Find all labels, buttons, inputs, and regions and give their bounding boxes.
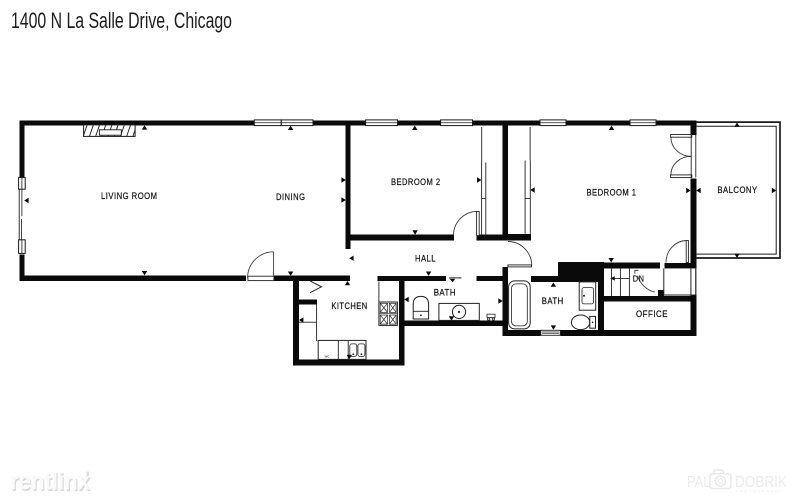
svg-text:BEDROOM 2: BEDROOM 2 [391, 177, 441, 188]
svg-text:OFFICE: OFFICE [636, 309, 668, 320]
svg-text:BATH: BATH [434, 287, 456, 298]
svg-text:LIVING ROOM: LIVING ROOM [101, 191, 158, 202]
svg-text:rentlinx: rentlinx [10, 468, 90, 496]
svg-text:DINING: DINING [276, 192, 306, 203]
svg-text:PHOTOGRAPHY: PHOTOGRAPHY [736, 489, 784, 494]
svg-text:PAL: PAL [687, 474, 711, 491]
svg-text:KITCHEN: KITCHEN [331, 301, 367, 312]
svg-text:BATH: BATH [542, 296, 564, 307]
svg-text:BALCONY: BALCONY [717, 185, 757, 196]
svg-text:1400 N La Salle Drive, Chicago: 1400 N La Salle Drive, Chicago [11, 8, 232, 33]
svg-text:HALL: HALL [415, 253, 436, 264]
svg-text:BEDROOM 1: BEDROOM 1 [587, 187, 637, 198]
svg-text:DN: DN [633, 274, 645, 284]
svg-text:wc: wc [325, 353, 330, 358]
